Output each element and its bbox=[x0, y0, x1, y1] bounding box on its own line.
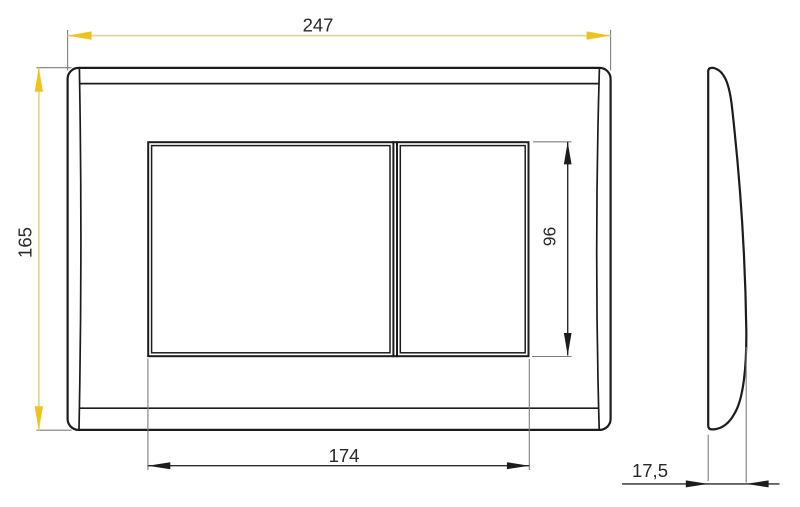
svg-text:165: 165 bbox=[15, 227, 36, 258]
svg-text:96: 96 bbox=[539, 227, 559, 246]
svg-text:174: 174 bbox=[329, 445, 360, 466]
svg-text:17,5: 17,5 bbox=[632, 460, 668, 481]
svg-text:247: 247 bbox=[303, 15, 334, 36]
